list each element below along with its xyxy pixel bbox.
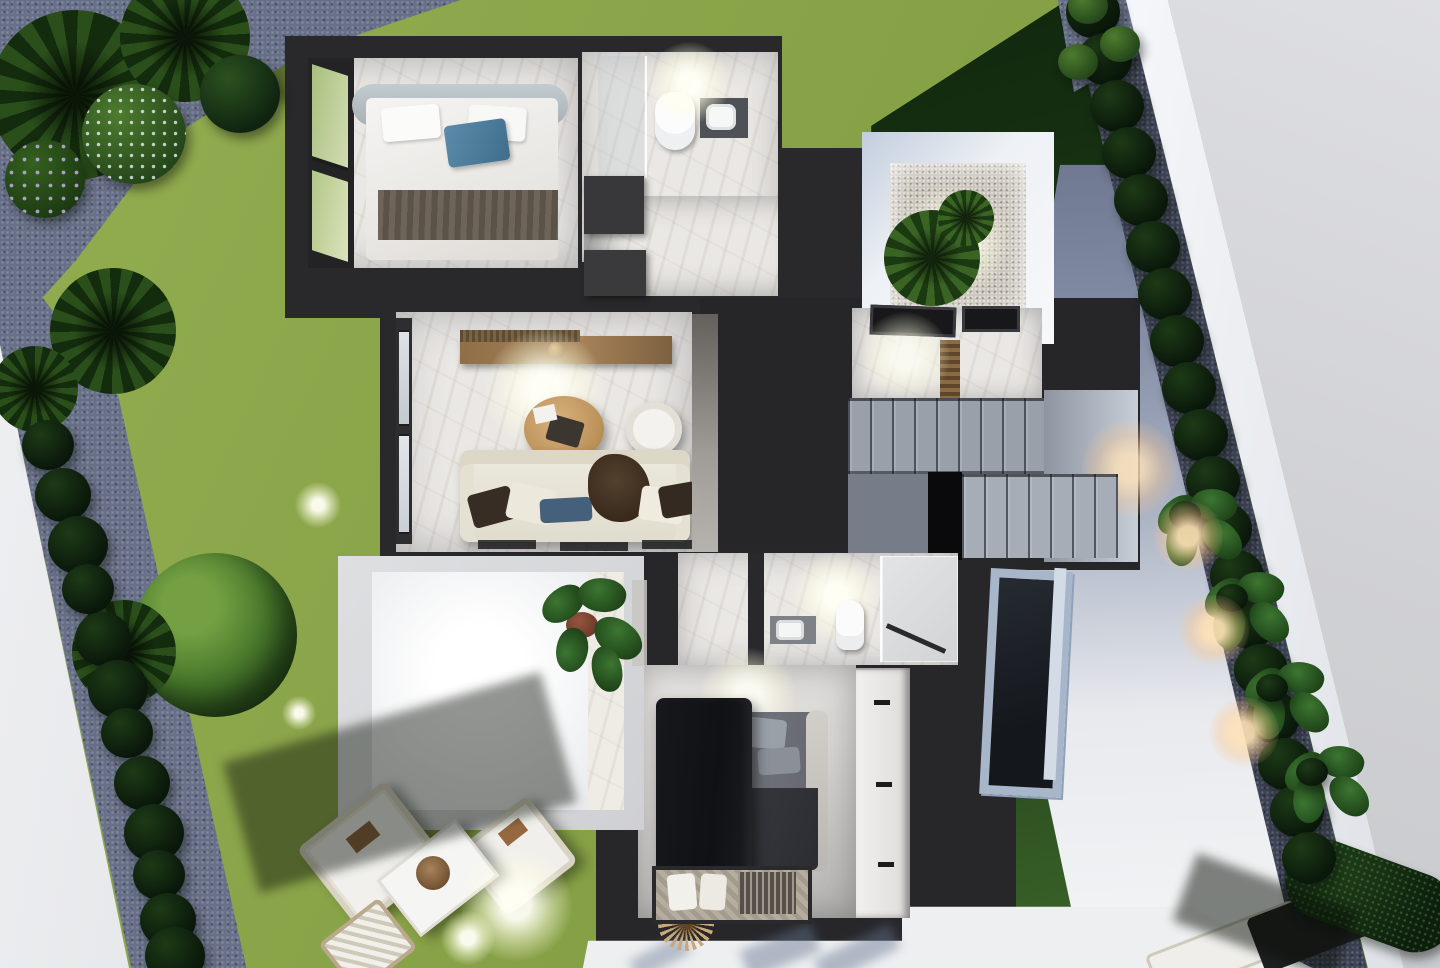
walkway-plant-base <box>1296 758 1328 786</box>
rug-patterned-panel <box>738 872 796 914</box>
window-glass <box>312 170 348 262</box>
stair-flight-upper <box>848 398 1044 474</box>
rug-cushion <box>666 873 697 911</box>
hanging-egg-chair <box>626 402 682 456</box>
canopy-curtain <box>656 698 752 890</box>
border-shrub <box>1102 127 1156 179</box>
hallway-cabinet <box>584 250 646 296</box>
shower-glass <box>645 56 647 178</box>
sofa-pillow-blue <box>539 497 592 524</box>
border-shrub <box>1126 221 1180 273</box>
border-shrub <box>1282 832 1336 884</box>
rug-cushion <box>699 873 727 911</box>
border-shrub <box>75 612 131 666</box>
walkway-uplight <box>1153 501 1223 571</box>
border-shrub <box>114 756 170 810</box>
garden-light <box>441 911 495 965</box>
border-shrub <box>22 420 74 470</box>
window-glass <box>399 434 409 534</box>
walkway-plant-base <box>1256 674 1288 702</box>
corridor-strip <box>692 314 718 552</box>
entry-shrub <box>1100 26 1140 62</box>
washbasin <box>776 620 804 640</box>
border-shrub <box>1114 174 1168 226</box>
bathroom-1-light <box>648 42 730 124</box>
shower-enclosure <box>880 556 958 662</box>
entry-shrub <box>1058 44 1098 80</box>
garden-light <box>295 482 341 528</box>
border-shrub <box>1162 362 1216 414</box>
floor-mat <box>642 540 696 549</box>
stairwell-light <box>860 312 950 402</box>
floor-mat <box>478 540 536 549</box>
stair-flight-lower <box>962 474 1118 558</box>
stair-lower-slab <box>848 474 928 560</box>
border-shrub <box>35 468 91 522</box>
toilet <box>836 600 864 650</box>
garden-light <box>282 696 316 730</box>
border-shrub <box>62 564 114 614</box>
bed-throw-blanket <box>378 190 558 240</box>
flowering-shrub <box>5 140 85 218</box>
bed-pillow-blue <box>443 118 510 168</box>
window-glass <box>399 330 409 426</box>
border-shrub <box>1150 315 1204 367</box>
wardrobe-handle <box>874 700 890 705</box>
hallway-cabinet <box>584 176 644 234</box>
bed-2-pillow <box>757 747 801 776</box>
wardrobe-handle <box>876 782 892 787</box>
wardrobe <box>856 668 910 918</box>
floor-mat <box>560 542 628 551</box>
rope-basket <box>416 856 450 890</box>
walkway-uplight <box>1209 697 1279 767</box>
window-glass <box>312 64 348 172</box>
border-shrub <box>101 708 153 758</box>
shower-tray <box>598 56 644 178</box>
skylight <box>962 306 1020 332</box>
border-shrub <box>133 850 185 900</box>
border-shrub <box>1138 268 1192 320</box>
bed-pillow <box>381 104 442 143</box>
wardrobe-handle <box>878 862 894 867</box>
shrub <box>200 55 280 133</box>
floor-plan-scene <box>0 0 1440 968</box>
flowering-shrub <box>82 84 186 184</box>
stair-void <box>928 472 962 560</box>
border-shrub <box>1174 409 1228 461</box>
walkway-uplight <box>1179 595 1249 665</box>
border-shrub <box>1090 80 1144 132</box>
